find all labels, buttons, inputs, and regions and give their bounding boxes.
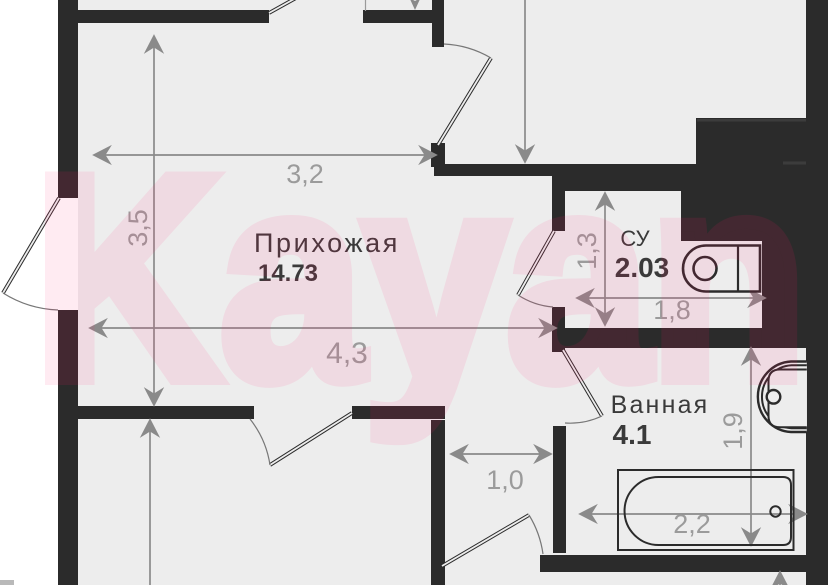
svg-text:2,2: 2,2: [673, 509, 711, 539]
svg-text:1,0: 1,0: [486, 465, 524, 495]
svg-text:Kayan: Kayan: [34, 117, 807, 442]
